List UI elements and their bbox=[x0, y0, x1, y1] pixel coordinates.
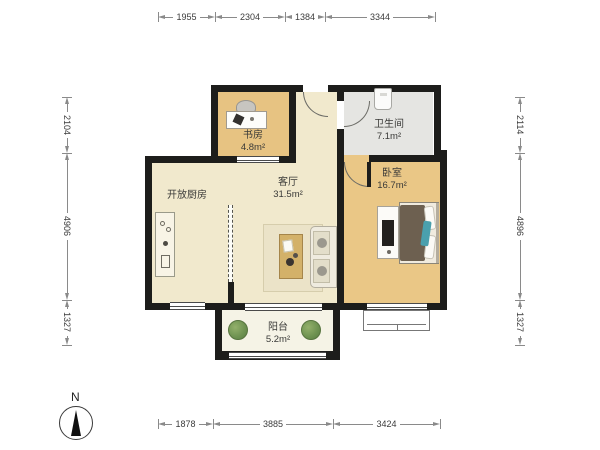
wall-segment bbox=[337, 92, 344, 101]
dim-bottom-3: 3424 bbox=[333, 417, 440, 431]
wall-segment bbox=[145, 156, 218, 163]
compass-needle bbox=[71, 410, 81, 436]
floor-plan-canvas: 1955 2304 1384 3344 1878 3885 3424 bbox=[0, 0, 600, 450]
dim-right-2: 4896 bbox=[513, 153, 527, 300]
room-name: 开放厨房 bbox=[155, 189, 219, 202]
dim-label: 3424 bbox=[373, 419, 399, 429]
kitchen-counter bbox=[155, 212, 175, 277]
dim-label: 3885 bbox=[260, 419, 286, 429]
dim-label: 1955 bbox=[173, 12, 199, 22]
dim-top-4: 3344 bbox=[325, 10, 435, 24]
dim-top-2: 2304 bbox=[215, 10, 285, 24]
dim-label: 1327 bbox=[62, 309, 72, 335]
wall-segment bbox=[211, 156, 237, 163]
coffee-table bbox=[279, 234, 303, 279]
room-label-kitchen: 开放厨房 bbox=[155, 189, 219, 202]
tv-cabinet bbox=[377, 206, 399, 259]
room-label-bedroom: 卧室 16.7m² bbox=[358, 167, 426, 192]
room-label-living: 客厅 31.5m² bbox=[252, 176, 324, 201]
bedroom-window-opening bbox=[367, 303, 427, 310]
dim-label: 2104 bbox=[62, 112, 72, 138]
bed bbox=[399, 202, 439, 264]
room-area: 16.7m² bbox=[358, 180, 426, 192]
room-label-bathroom: 卫生间 7.1m² bbox=[346, 118, 432, 143]
dim-top-3: 1384 bbox=[285, 10, 325, 24]
wall-segment bbox=[337, 162, 344, 310]
dim-left-2: 4906 bbox=[60, 153, 74, 300]
wall-segment bbox=[279, 156, 296, 163]
dim-top-1: 1955 bbox=[158, 10, 215, 24]
wall-segment bbox=[434, 85, 441, 157]
room-label-study: 书房 4.8m² bbox=[222, 129, 284, 154]
dim-right-3: 1327 bbox=[513, 300, 527, 345]
dim-left-3: 1327 bbox=[60, 300, 74, 345]
plant-icon bbox=[228, 320, 248, 340]
balcony-sliding-door bbox=[245, 303, 322, 311]
dim-label: 1327 bbox=[515, 309, 525, 335]
dim-left-1: 2104 bbox=[60, 97, 74, 153]
dim-bottom-2: 3885 bbox=[213, 417, 333, 431]
wall-segment bbox=[205, 303, 245, 310]
compass-north-label: N bbox=[71, 390, 80, 404]
water-heater bbox=[374, 88, 392, 110]
study-sliding-door bbox=[237, 156, 279, 163]
wall-segment bbox=[228, 282, 234, 303]
kitchen-window bbox=[170, 302, 205, 310]
bay-window bbox=[363, 310, 430, 331]
room-label-balcony: 阳台 5.2m² bbox=[247, 321, 309, 346]
room-area: 4.8m² bbox=[222, 142, 284, 154]
dim-label: 3344 bbox=[367, 12, 393, 22]
sofa bbox=[310, 226, 337, 288]
room-area: 7.1m² bbox=[346, 131, 432, 143]
kitchen-partition-dashed bbox=[228, 205, 233, 282]
study-desk bbox=[226, 111, 267, 129]
dim-label: 1878 bbox=[172, 419, 198, 429]
wall-segment bbox=[145, 156, 152, 310]
compass-icon bbox=[59, 406, 93, 440]
wall-segment bbox=[440, 150, 447, 310]
room-name: 卫生间 bbox=[346, 118, 432, 131]
dim-bottom-1: 1878 bbox=[158, 417, 213, 431]
room-name: 卧室 bbox=[358, 167, 426, 180]
room-area: 5.2m² bbox=[247, 334, 309, 346]
dim-label: 2114 bbox=[515, 112, 525, 137]
wall-segment bbox=[340, 303, 367, 310]
wall-segment bbox=[211, 85, 303, 92]
wall-segment bbox=[369, 155, 440, 162]
wall-segment bbox=[289, 92, 296, 163]
dim-label: 2304 bbox=[237, 12, 263, 22]
balcony-window bbox=[229, 352, 326, 359]
room-area: 31.5m² bbox=[252, 189, 324, 201]
room-name: 书房 bbox=[222, 129, 284, 142]
bed-headboard bbox=[436, 203, 439, 263]
wall-segment bbox=[337, 129, 344, 162]
dim-right-1: 2114 bbox=[513, 97, 527, 153]
dim-label: 4896 bbox=[515, 213, 525, 239]
wall-segment bbox=[427, 303, 447, 310]
dim-label: 4906 bbox=[62, 213, 72, 239]
room-name: 阳台 bbox=[247, 321, 309, 334]
wall-segment bbox=[211, 85, 218, 163]
room-name: 客厅 bbox=[252, 176, 324, 189]
dim-label: 1384 bbox=[292, 12, 318, 22]
wall-segment bbox=[145, 303, 170, 310]
